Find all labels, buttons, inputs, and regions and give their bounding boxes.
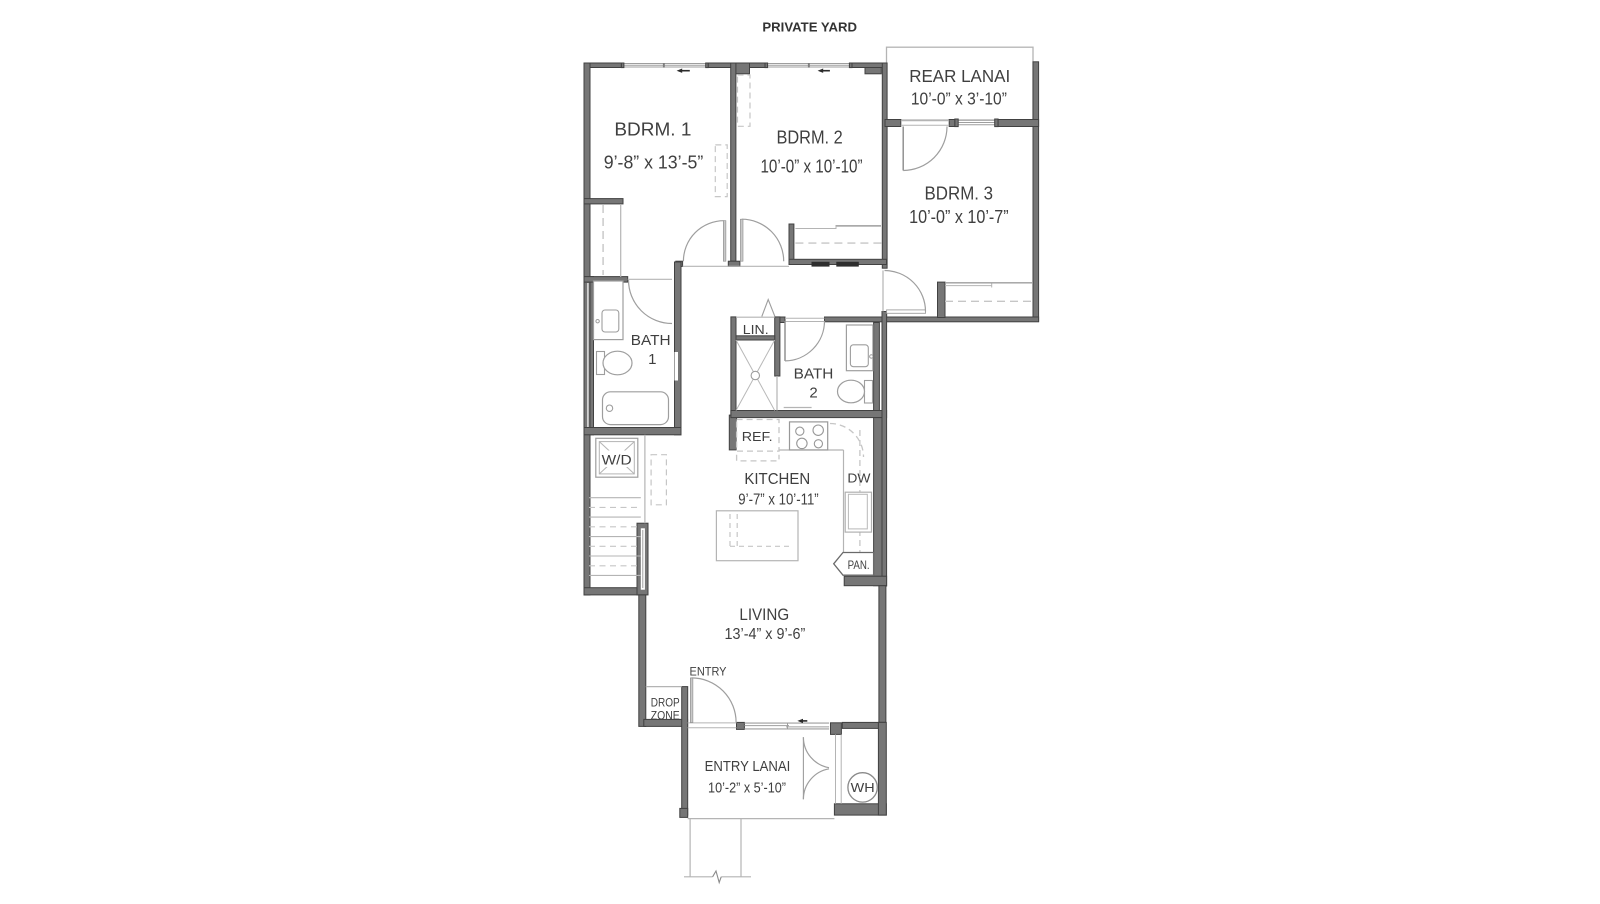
svg-text:ENTRY: ENTRY	[690, 665, 727, 679]
svg-text:BDRM. 3: BDRM. 3	[925, 184, 994, 204]
svg-text:DW: DW	[847, 471, 871, 486]
svg-text:PRIVATE YARD: PRIVATE YARD	[762, 21, 857, 35]
svg-text:KITCHEN: KITCHEN	[744, 471, 810, 488]
svg-text:REAR LANAI: REAR LANAI	[909, 66, 1010, 86]
svg-text:DROP: DROP	[651, 696, 680, 710]
svg-text:9’-8” x 13’-5”: 9’-8” x 13’-5”	[604, 152, 704, 172]
svg-text:10’-0” x 3’-10”: 10’-0” x 3’-10”	[911, 89, 1007, 109]
svg-text:LIN.: LIN.	[743, 323, 769, 337]
svg-text:10’-0” x 10’-7”: 10’-0” x 10’-7”	[909, 207, 1009, 227]
svg-text:WH: WH	[851, 781, 875, 795]
svg-text:ZONE: ZONE	[651, 708, 680, 722]
svg-text:BATH: BATH	[794, 366, 834, 383]
svg-text:10’-2” x 5’-10”: 10’-2” x 5’-10”	[708, 780, 786, 797]
svg-text:W/D: W/D	[602, 452, 632, 468]
svg-text:2: 2	[809, 385, 817, 402]
svg-text:13’-4” x 9’-6”: 13’-4” x 9’-6”	[725, 626, 806, 643]
svg-text:REF.: REF.	[742, 430, 773, 444]
svg-text:BATH: BATH	[631, 332, 671, 349]
svg-text:ENTRY LANAI: ENTRY LANAI	[705, 758, 791, 775]
svg-text:PAN.: PAN.	[848, 560, 870, 572]
svg-text:BDRM. 1: BDRM. 1	[614, 120, 691, 140]
svg-text:1: 1	[648, 351, 656, 368]
svg-text:10’-0” x 10’-10”: 10’-0” x 10’-10”	[761, 157, 863, 177]
svg-text:LIVING: LIVING	[739, 605, 789, 624]
svg-text:9’-7” x 10’-11”: 9’-7” x 10’-11”	[738, 492, 818, 509]
svg-text:BDRM. 2: BDRM. 2	[776, 127, 842, 147]
